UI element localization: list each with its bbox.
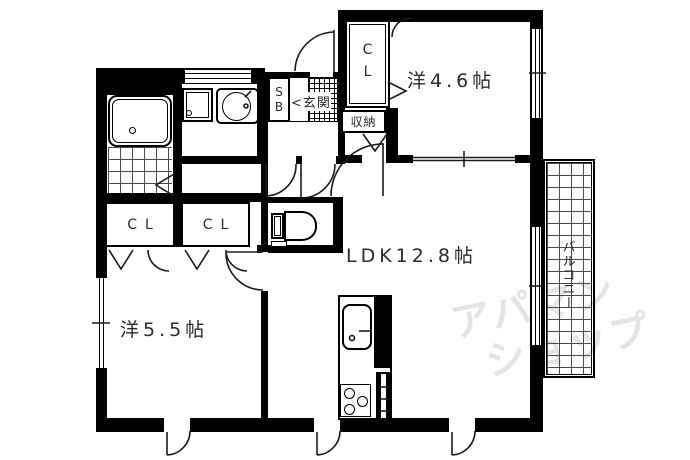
closet-west-2-door-arc (226, 250, 247, 271)
closet-west-1-door-arc (148, 250, 169, 271)
toilet-buttons (271, 241, 287, 247)
closet-west-2-folding-door (185, 250, 209, 269)
closet-west-2: CL (181, 202, 250, 247)
bathtub-inner (112, 99, 168, 143)
toilet-bowl (284, 211, 317, 241)
room55-door-arc (226, 253, 263, 290)
entrance-text: 玄関 (303, 96, 331, 111)
wall-bath-top (96, 84, 178, 95)
room-label-western-4-6: 洋4.6帖 (407, 70, 495, 93)
storage-folding-door (363, 134, 387, 151)
washing-machine-pan-drain (186, 110, 192, 116)
window-room46-right (532, 24, 541, 123)
opening-terrace-door-2 (314, 418, 340, 432)
closet-north-label: CL (360, 42, 376, 86)
bathtub (108, 95, 172, 147)
opening-terrace-door-1 (164, 418, 190, 432)
closet-north-folding-door (388, 82, 406, 100)
shoe-box-label: SB (272, 85, 286, 115)
wall-ldk-top-b (398, 155, 413, 163)
terrace-door-3-arc (452, 431, 475, 455)
stove-burner (344, 404, 355, 415)
wall-storage-right (386, 108, 398, 163)
balcony-label: バルコニー (556, 215, 578, 335)
wall-ldk-top-c (515, 155, 531, 163)
wall-toilet-bottom (257, 245, 343, 253)
bathroom-tile-floor (108, 147, 172, 193)
wall-ldk-top-a (343, 155, 362, 163)
closet-north: CL (345, 20, 390, 108)
entrance-step-line (268, 121, 338, 122)
wall-washroom-bottom-a (178, 156, 267, 164)
window-cap (96, 368, 107, 373)
storage-label: 収納 (350, 113, 376, 130)
opening-terrace-door-3 (449, 418, 475, 432)
window-cap (532, 345, 541, 350)
window-cap (532, 118, 541, 123)
stove-burner (357, 396, 368, 407)
entrance-arrow: < (291, 96, 303, 111)
terrace-door-2-arc (317, 431, 340, 455)
room-label-western-5-5: 洋5.5帖 (120, 319, 208, 342)
storage-box: 収納 (341, 110, 386, 133)
kitchen-sink (342, 304, 372, 350)
closet-west-2-label: CL (195, 217, 237, 233)
wall-bath-washroom (173, 84, 182, 197)
wall-toilet-top (265, 197, 335, 203)
window-cap (96, 273, 107, 278)
toilet-tank-inner (274, 216, 281, 236)
shoe-box: SB (268, 77, 290, 122)
closet-west-1-folding-door (109, 250, 133, 269)
washbasin-bowl (222, 92, 251, 121)
window-cap (532, 24, 541, 29)
window-bathroom (180, 70, 256, 83)
entrance-door-arc (295, 32, 334, 71)
kitchen-counter-strip-upper (374, 295, 392, 368)
toilet-tank (271, 213, 284, 239)
closet-west-1-label: CL (119, 217, 161, 233)
entrance-label: <玄関 (291, 92, 331, 111)
window-ldk-balcony (532, 222, 541, 350)
floor-plan: アパマン ショップ バルコニー (0, 0, 690, 460)
wall-entrance-right (338, 22, 345, 160)
kitchen-hatch-slit (381, 374, 386, 418)
washing-machine-pan (182, 88, 213, 122)
terrace-door-1-arc (167, 431, 190, 455)
window-room55-left (96, 273, 107, 373)
window-cap (180, 70, 185, 83)
washroom-door-arc (266, 164, 296, 196)
stove-burner (344, 388, 355, 399)
bathtub-drain (129, 127, 136, 134)
window-cap (251, 70, 256, 83)
closet-west-1: CL (105, 202, 175, 247)
opening-sliding-door (413, 155, 515, 163)
toilet-door-arc (301, 164, 335, 198)
wall-washroom-bottom-b (296, 156, 302, 164)
opening-room55-door (261, 252, 268, 291)
room-label-ldk: LDK12.8帖 (346, 245, 477, 268)
wall-closet-row-top (96, 193, 267, 202)
wall-left-outer (96, 68, 107, 430)
window-cap (532, 222, 541, 227)
